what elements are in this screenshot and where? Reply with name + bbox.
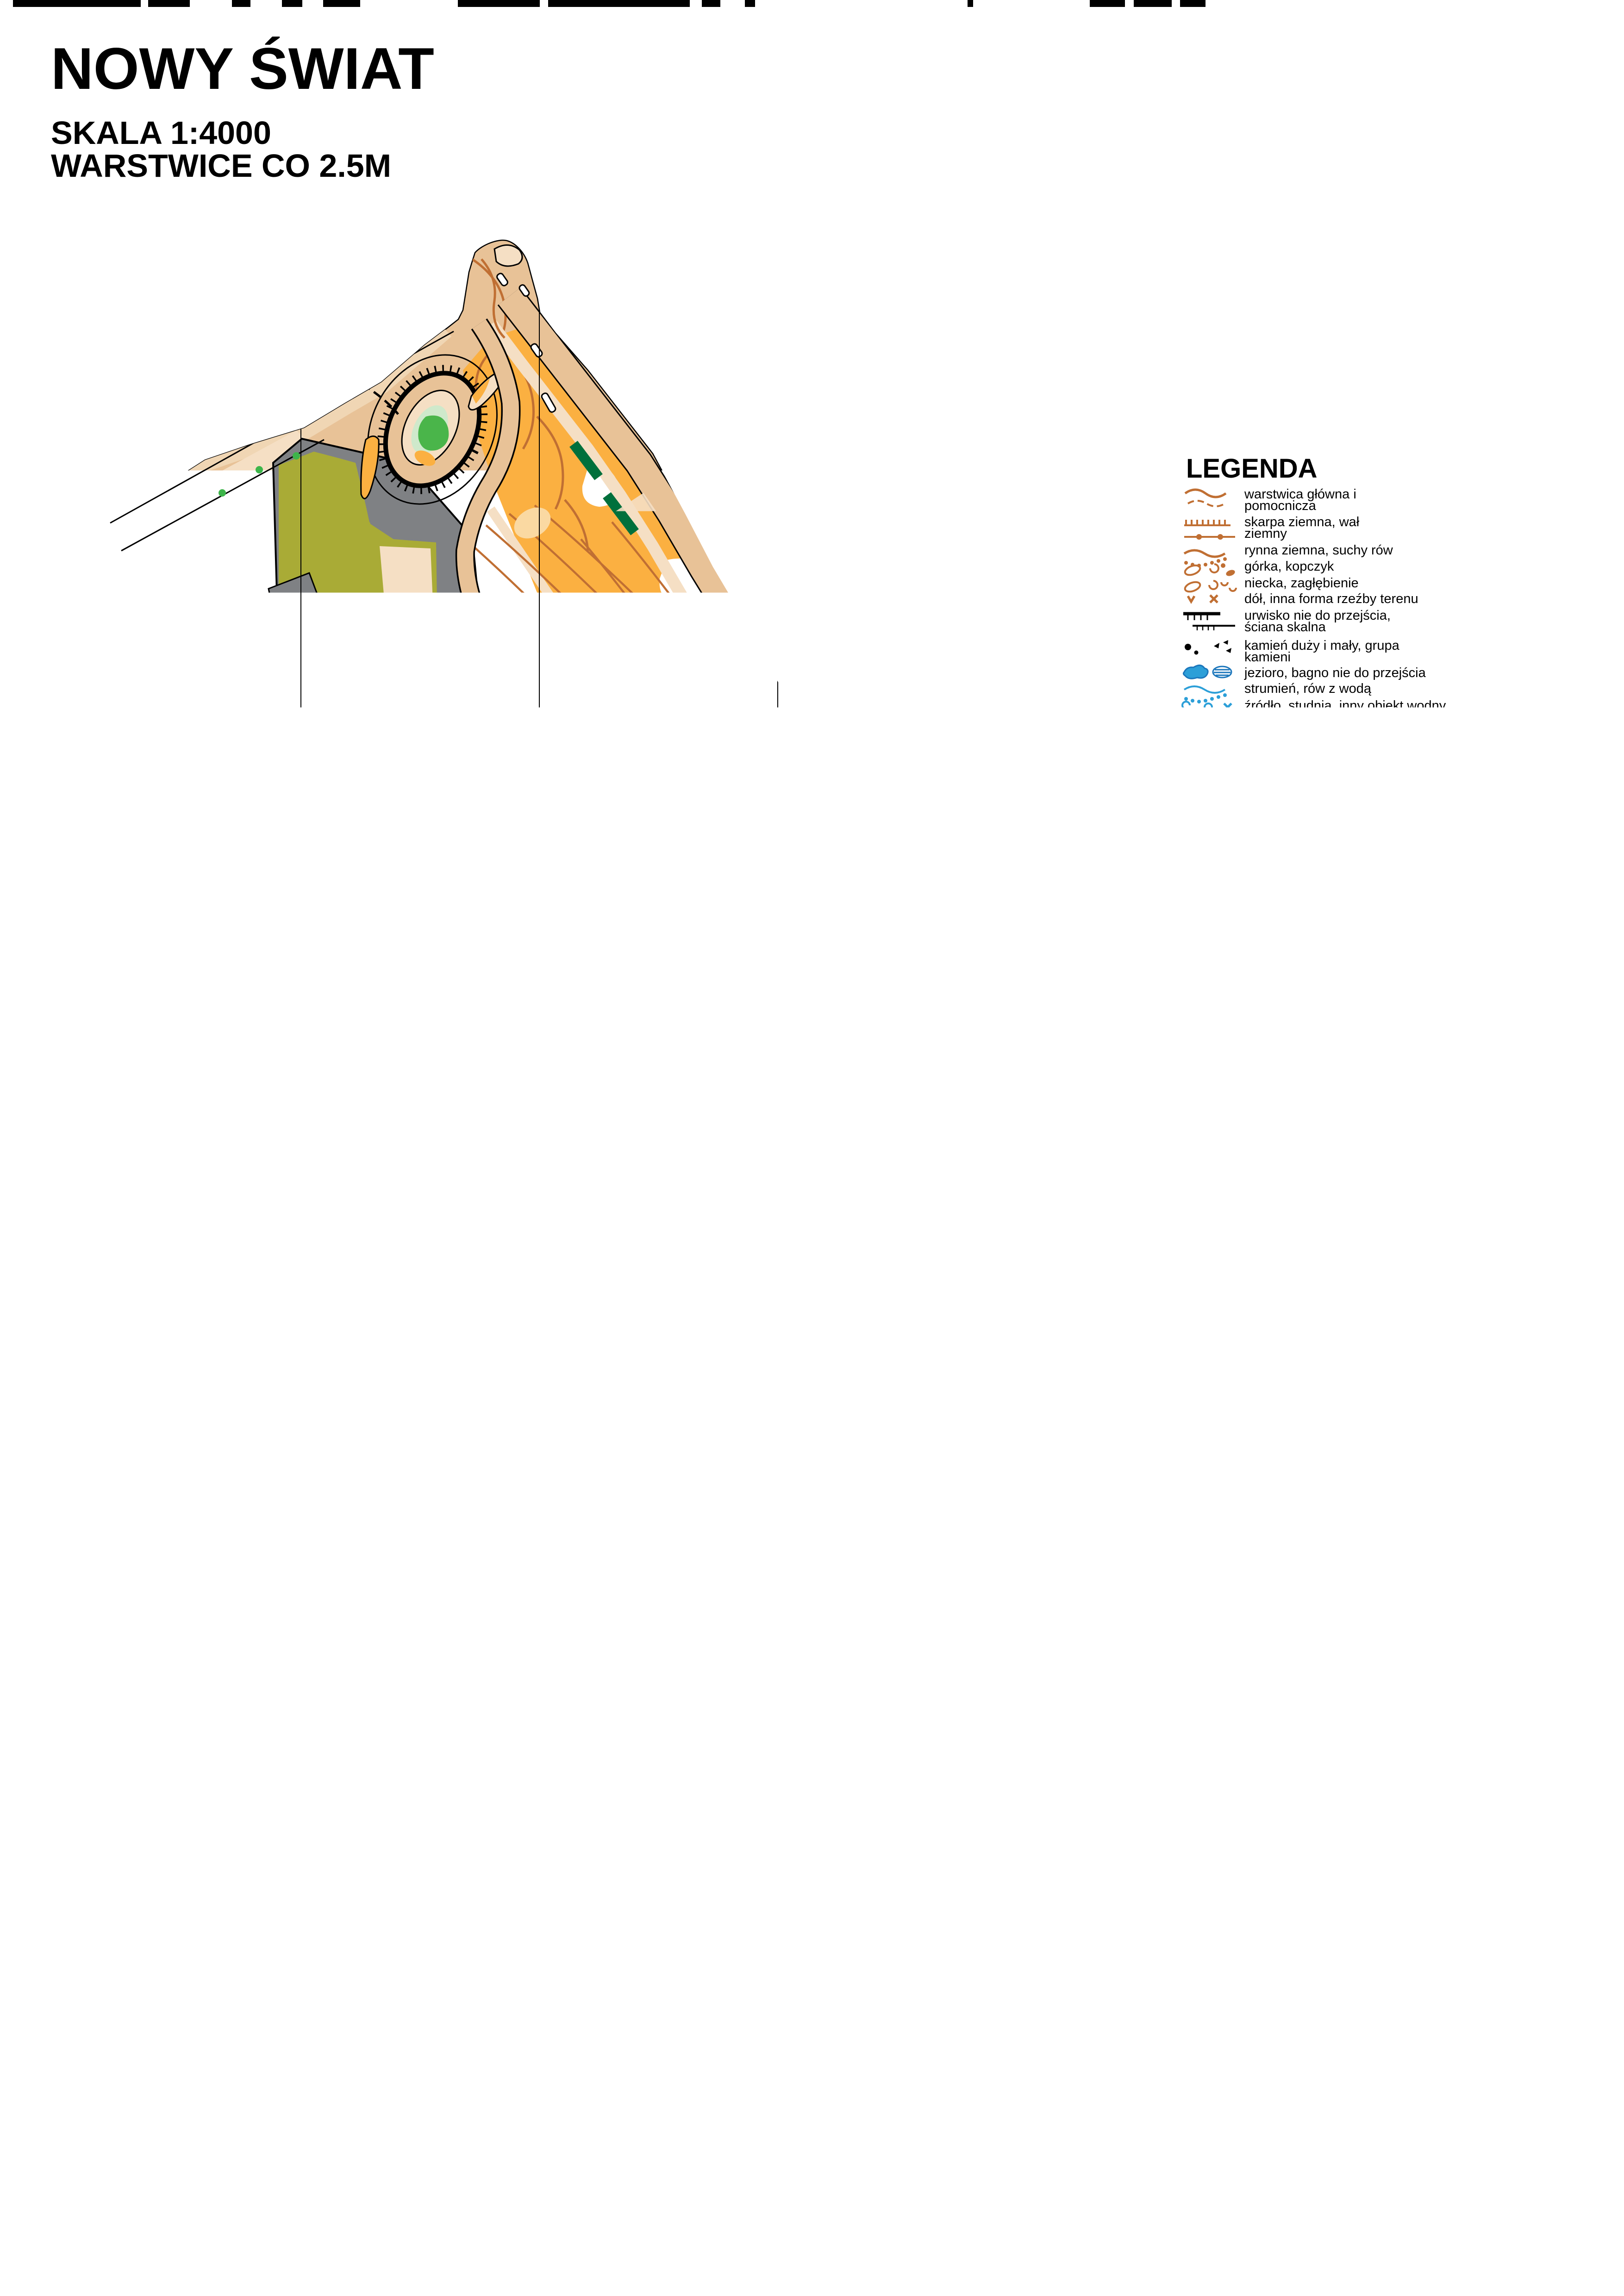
svg-text:WWW.UNTS.WAW.PL: WWW.UNTS.WAW.PL xyxy=(114,1834,393,1854)
svg-text:krzak, inny obiekt roślinny: krzak, inny obiekt roślinny xyxy=(1244,867,1399,882)
svg-text:granica kultur: granica kultur xyxy=(1244,838,1325,853)
svg-text:LEGENDA: LEGENDA xyxy=(1186,454,1318,484)
svg-text:roślinność zakazania do przebi: roślinność zakazania do przebiegania xyxy=(1244,804,1469,819)
svg-text:SKALA 1:4000: SKALA 1:4000 xyxy=(51,115,271,151)
svg-text:teren prywatny lub zakazany, b: teren prywatny lub zakazany, budynki xyxy=(1244,951,1467,966)
svg-text:pomocnicza: pomocnicza xyxy=(1244,498,1317,513)
svg-text:niecka, zagłębienie: niecka, zagłębienie xyxy=(1244,576,1359,591)
svg-text:źródło, studnia, inny obiekt w: źródło, studnia, inny obiekt wodny xyxy=(1244,698,1446,713)
svg-text:ścieżka: ścieżka xyxy=(1244,912,1290,927)
svg-text:Jacek Morawski: Jacek Morawski xyxy=(1278,2074,1396,2093)
svg-text:trudna przebieżność: trudna przebieżność xyxy=(1244,778,1365,793)
svg-text:jezioro, bagno nie do przejści: jezioro, bagno nie do przejścia xyxy=(1244,666,1426,680)
svg-text:linia kolejowa, linia tramwajo: linia kolejowa, linia tramwajowa xyxy=(1244,934,1431,949)
svg-text:rynna ziemna, suchy rów: rynna ziemna, suchy rów xyxy=(1244,543,1393,558)
svg-text:ziemny: ziemny xyxy=(1244,526,1287,541)
svg-text:LiDAR: LiDAR xyxy=(1278,2131,1326,2150)
svg-text:październik 2014: październik 2014 xyxy=(1278,2055,1404,2074)
svg-text:ściana skalna: ściana skalna xyxy=(1244,620,1326,635)
svg-text:Powierzchnia mapy:: Powierzchnia mapy: xyxy=(1068,2093,1229,2112)
svg-text:WARSTWICE CO 2.5M: WARSTWICE CO 2.5M xyxy=(51,148,391,184)
svg-text:płot nie do przejścia, płot do: płot nie do przejścia, płot do przejścia xyxy=(1244,968,1468,983)
svg-text:sztuczny obiekt: sztuczny obiekt xyxy=(1244,1030,1336,1045)
svg-text:teren otwarty, półotwarty: teren otwarty, półotwarty xyxy=(1244,715,1390,729)
svg-text:0.7km²: 0.7km² xyxy=(1278,2093,1329,2112)
svg-text:kamieni: kamieni xyxy=(1244,650,1291,665)
svg-text:teren piaszczysty, las: teren piaszczysty, las xyxy=(1244,731,1371,746)
svg-text:dół, inna forma rzeźby terenu: dół, inna forma rzeźby terenu xyxy=(1244,591,1418,606)
svg-text:górka, kopczyk: górka, kopczyk xyxy=(1244,559,1334,574)
svg-text:mur nie do przejścia, mur do p: mur nie do przejścia, mur do przejścia xyxy=(1244,984,1471,999)
svg-text:Autor:: Autor: xyxy=(1068,2074,1118,2093)
svg-text:rzadki las, teren półotwarty z: rzadki las, teren półotwarty z drzewami xyxy=(1244,749,1476,764)
svg-text:porost niski, porost wysoki: porost niski, porost wysoki xyxy=(1244,821,1401,836)
svg-text:NOWY ŚWIAT: NOWY ŚWIAT xyxy=(51,36,434,101)
svg-text:Mapa podkładowa:: Mapa podkładowa: xyxy=(1068,2112,1218,2131)
svg-text:most: most xyxy=(1244,1002,1274,1016)
svg-text:strumień, rów z wodą: strumień, rów z wodą xyxy=(1244,681,1372,696)
svg-text:ortofotomapa MGGP Aero: ortofotomapa MGGP Aero xyxy=(1278,2112,1470,2131)
svg-text:teren zakazany, teren niebezpi: teren zakazany, teren niebezpieczny xyxy=(1244,1047,1462,1062)
svg-text:Aktualność:: Aktualność: xyxy=(1068,2055,1164,2074)
